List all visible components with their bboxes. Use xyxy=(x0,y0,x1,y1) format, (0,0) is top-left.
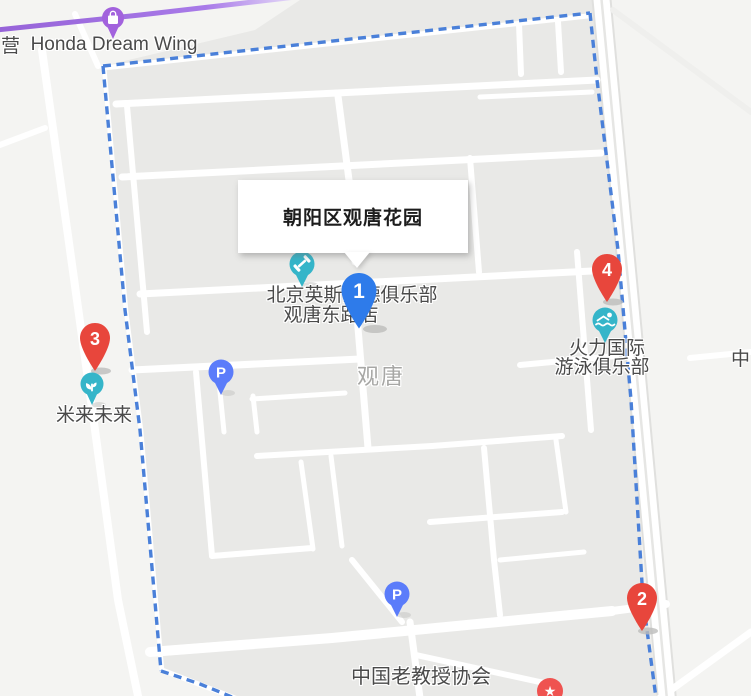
area-label-guantang: 观唐 xyxy=(357,365,405,388)
parking-icon: P xyxy=(392,587,402,604)
star-icon: ★ xyxy=(544,683,557,696)
parking-pin-2[interactable]: P xyxy=(382,580,412,625)
fitness-club-poi-pin[interactable] xyxy=(287,250,317,295)
edge-label-left: 营 xyxy=(1,37,20,57)
marker-2-pin[interactable]: 2 xyxy=(624,582,660,637)
milai-poi-pin[interactable] xyxy=(77,371,107,414)
parking-pin-1[interactable]: P xyxy=(206,358,236,403)
marker-4-number: 4 xyxy=(602,260,612,280)
info-bubble-tail xyxy=(344,252,370,268)
marker-2-number: 2 xyxy=(637,589,647,609)
map-viewport[interactable]: Honda Dream Wing 营 中 北京英斯派德俱乐部 观唐东路店 火力国… xyxy=(0,0,751,696)
swim-club-poi-pin[interactable] xyxy=(590,306,620,351)
marker-1-pin[interactable]: 1 xyxy=(338,272,380,335)
edge-label-right: 中 xyxy=(731,350,750,370)
info-bubble[interactable]: 朝阳区观唐花园 xyxy=(238,180,468,253)
parking-icon: P xyxy=(216,365,226,382)
info-bubble-title: 朝阳区观唐花园 xyxy=(283,203,423,230)
marker-4-pin[interactable]: 4 xyxy=(589,253,625,308)
marker-1-number: 1 xyxy=(353,280,365,303)
marker-3-pin[interactable]: 3 xyxy=(77,322,113,377)
professors-poi-pin[interactable]: ★ xyxy=(536,677,564,696)
honda-poi-pin[interactable] xyxy=(100,6,126,47)
poi-label-professors[interactable]: 中国老教授协会 xyxy=(351,667,491,688)
marker-3-number: 3 xyxy=(90,329,100,349)
poi-label-swim-line2[interactable]: 游泳俱乐部 xyxy=(554,358,649,378)
